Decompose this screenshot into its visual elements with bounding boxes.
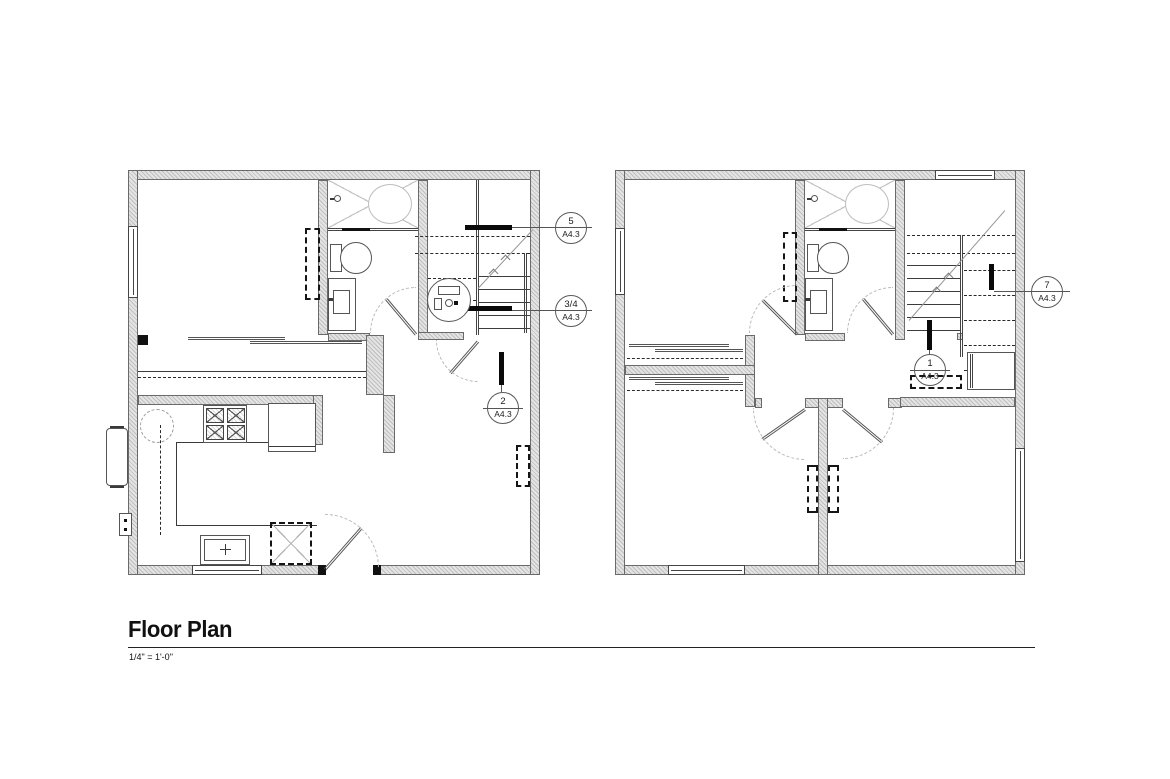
callout-sheet: A4.3 [921, 372, 939, 381]
wall [418, 332, 464, 340]
view-title: Floor Plan [128, 616, 232, 643]
wall [418, 180, 428, 335]
title-underline [128, 647, 1035, 648]
door-swing-arc [847, 287, 893, 333]
section-cut-mark [465, 306, 512, 311]
window [128, 226, 138, 298]
callout-bubble-1[interactable]: 1 A4.3 [914, 354, 946, 386]
wall [366, 335, 384, 395]
wall-panel-dashed [516, 445, 530, 487]
wall [625, 365, 755, 375]
door-swing-arc [325, 514, 379, 568]
callout-number: 5 [568, 217, 573, 227]
callout-number: 3/4 [564, 300, 577, 310]
wall [805, 333, 845, 341]
overhead-dashed-line [415, 253, 530, 254]
window [668, 565, 745, 575]
door-swing-arc [370, 287, 416, 333]
stair-treads [479, 276, 530, 334]
window [935, 170, 995, 180]
callout-sheet: A4.3 [494, 410, 512, 419]
shower-head-icon [334, 195, 341, 202]
wall [895, 180, 905, 340]
callout-bubble-2[interactable]: 2 A4.3 [487, 392, 519, 424]
bypass-door [655, 349, 743, 352]
refrigerator [268, 403, 316, 452]
section-cut-mark [989, 264, 994, 290]
electric-meter [119, 513, 132, 536]
closet-rod-dashed [138, 377, 366, 378]
stair-railing [960, 235, 963, 357]
ac-condenser-cap [110, 426, 124, 428]
refrigerator-door-line [269, 446, 315, 447]
ac-condenser [106, 428, 128, 486]
vanity-sink [333, 290, 350, 314]
wall [383, 395, 395, 453]
callout-bubble-7[interactable]: 7 A4.3 [1031, 276, 1063, 308]
door-swing-arc [753, 408, 805, 460]
first-floor-plan [128, 170, 540, 575]
callout-bubble-3-4[interactable]: 3/4 A4.3 [555, 295, 587, 327]
overhead-dashed-line [415, 236, 530, 237]
closet-rod-dashed [627, 390, 743, 391]
faucet-icon [328, 298, 333, 301]
bypass-door [629, 344, 729, 347]
callout-sheet: A4.3 [562, 313, 580, 322]
leader-line [501, 385, 502, 392]
wall-panel-dashed [807, 465, 818, 513]
callout-sheet: A4.3 [1038, 294, 1056, 303]
overhead-dashed-line [964, 295, 1015, 296]
overhead-dashed-line [964, 320, 1015, 321]
section-cut-mark [499, 352, 504, 385]
wall [328, 333, 370, 341]
tub-front-edge [819, 228, 847, 231]
vanity-sink [810, 290, 827, 314]
toilet-bowl [340, 242, 372, 274]
bypass-door [250, 341, 362, 344]
dishwasher [270, 522, 312, 565]
meter-dot-icon [124, 519, 127, 522]
meter-dot-icon [124, 528, 127, 531]
section-cut-mark [465, 225, 512, 230]
callout-sheet: A4.3 [562, 230, 580, 239]
overhead-dashed-line [964, 345, 1015, 346]
window [192, 565, 262, 575]
wall [900, 397, 1015, 407]
tub-basin [845, 184, 889, 224]
callout-bubble-5[interactable]: 5 A4.3 [555, 212, 587, 244]
water-heater-valve [438, 286, 460, 295]
wall [128, 170, 540, 180]
burner-icon [227, 408, 245, 423]
door-swing-arc [843, 408, 894, 459]
floor-plan-sheet: 5 A4.3 3/4 A4.3 2 A4.3 1 A4.3 7 A4.3 Flo… [0, 0, 1170, 779]
wall-jamb [138, 335, 148, 345]
bypass-door [629, 377, 729, 380]
sink-cross-icon [225, 544, 226, 555]
counter-edge [176, 442, 177, 526]
stair-stringer [524, 253, 527, 333]
linen-cabinet [967, 352, 1015, 390]
water-heater-pipe [445, 299, 453, 307]
callout-number: 2 [500, 397, 505, 407]
closet-rod-dashed [627, 358, 743, 359]
tub-front-edge [342, 228, 370, 231]
door-swing-arc [749, 285, 797, 333]
tub-basin [368, 184, 412, 224]
upper-cabinet-dashed [160, 425, 161, 535]
future-fixture-dashed [140, 409, 174, 443]
wall-panel-dashed [828, 465, 839, 513]
second-floor-plan [615, 170, 1025, 575]
view-scale: 1/4" = 1'-0" [129, 652, 173, 662]
closet-shelf [138, 371, 366, 372]
burner-icon [206, 408, 224, 423]
callout-number: 1 [927, 359, 932, 369]
bypass-door [655, 382, 743, 385]
window [1015, 448, 1025, 562]
burner-icon [206, 425, 224, 440]
bypass-door [188, 337, 285, 340]
water-heater-pipe [454, 301, 458, 305]
wall-cabinet-dashed [305, 228, 320, 300]
callout-number: 7 [1044, 281, 1049, 291]
linen-cabinet-door-line [970, 354, 973, 388]
toilet-bowl [817, 242, 849, 274]
wall [818, 398, 828, 575]
window [615, 228, 625, 295]
burner-icon [227, 425, 245, 440]
door-swing-arc [436, 340, 478, 382]
shower-head-icon [811, 195, 818, 202]
faucet-icon [805, 298, 810, 301]
section-cut-mark [927, 320, 932, 350]
water-heater-valve [434, 298, 442, 310]
wall [755, 398, 762, 408]
ac-condenser-cap [110, 486, 124, 488]
